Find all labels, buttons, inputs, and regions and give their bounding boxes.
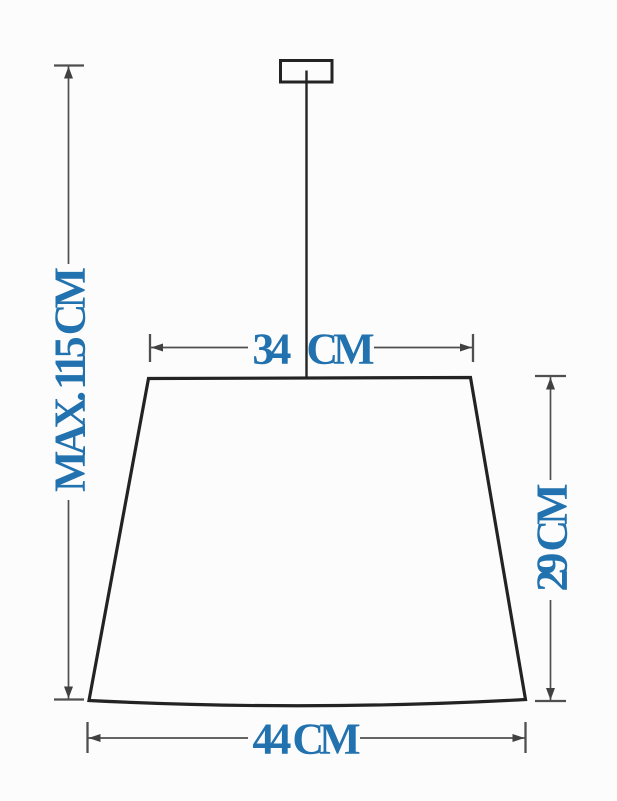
lampshade-outline [89, 378, 526, 706]
bottom-width-label: 44 CM [252, 715, 360, 764]
dimension-shade-height: 29 CM [528, 376, 577, 701]
arrow-right-icon [513, 734, 525, 742]
arrow-down-icon [546, 688, 555, 700]
diagram-canvas: MAX. 115 CM 34 CM 29 CM [0, 0, 617, 801]
arrow-up-icon [546, 378, 555, 390]
lamp-dimension-diagram: MAX. 115 CM 34 CM 29 CM [0, 0, 617, 801]
dimension-max-height: MAX. 115 CM [46, 66, 95, 700]
dimension-bottom-width: 44 CM [88, 715, 526, 764]
arrow-right-icon [460, 344, 472, 352]
dimension-top-width: 34 CM [150, 325, 473, 374]
shade-height-label: 29 CM [528, 484, 577, 592]
pendant-lamp-drawing [89, 61, 526, 706]
arrow-down-icon [64, 687, 73, 699]
arrow-left-icon [89, 734, 101, 742]
arrow-left-icon [151, 344, 163, 352]
arrow-up-icon [64, 67, 73, 79]
top-width-label: 34 CM [252, 325, 374, 374]
max-height-label: MAX. 115 CM [46, 268, 95, 492]
